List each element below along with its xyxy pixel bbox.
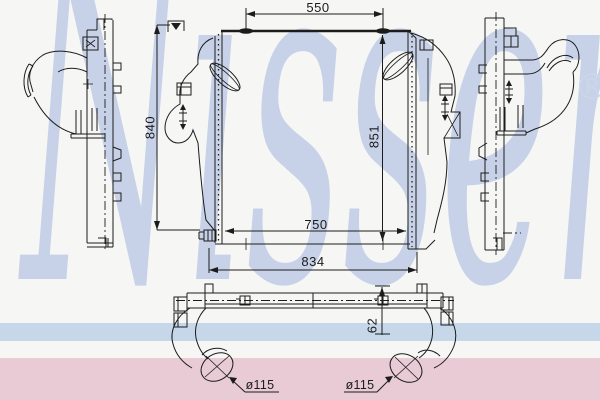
front-view-drawing xyxy=(165,21,460,250)
left-side-view-drawing xyxy=(24,14,121,252)
dimension-label-550: 550 xyxy=(296,1,340,14)
dimension-label-834: 834 xyxy=(291,255,335,268)
bottom-view-drawing xyxy=(172,284,456,392)
dimension-label-750: 750 xyxy=(294,218,338,231)
dimension-label-840: 840 xyxy=(144,106,157,150)
dimension-label-851: 851 xyxy=(368,115,381,159)
dimension-label-diameter-right: ø115 xyxy=(338,379,382,392)
right-side-view-drawing xyxy=(479,12,579,255)
dimension-label-62: 62 xyxy=(366,304,379,348)
dimension-label-diameter-left: ø115 xyxy=(238,379,282,392)
intercooler-technical-drawing xyxy=(0,0,600,400)
